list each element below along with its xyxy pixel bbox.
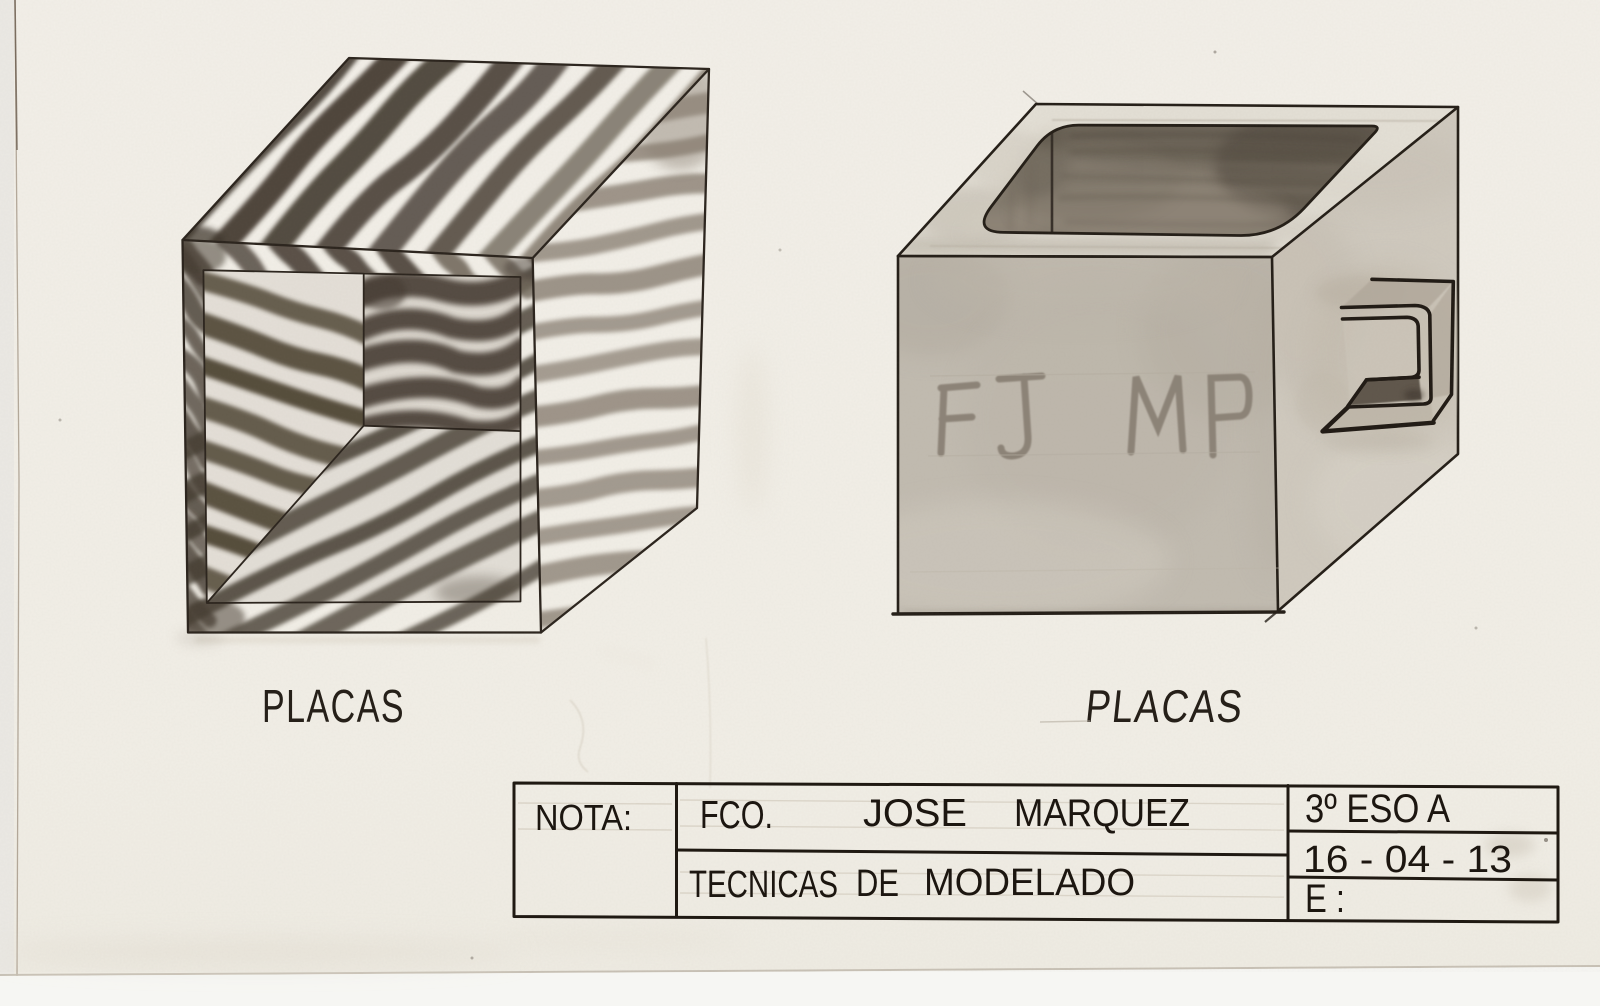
svg-text:NOTA:: NOTA: (535, 797, 632, 838)
svg-text:JOSE: JOSE (863, 792, 967, 835)
svg-text:3º ESO A: 3º ESO A (1305, 787, 1450, 831)
svg-text:MODELADO: MODELADO (924, 862, 1135, 904)
svg-text:TECNICAS: TECNICAS (689, 864, 838, 906)
svg-text:E :: E : (1305, 877, 1345, 921)
svg-text:PLACAS: PLACAS (262, 680, 405, 732)
svg-text:16 - 04 - 13: 16 - 04 - 13 (1303, 839, 1512, 881)
svg-text:FCO.: FCO. (700, 794, 773, 837)
svg-text:PLACAS: PLACAS (1083, 680, 1246, 732)
svg-text:MARQUEZ: MARQUEZ (1014, 792, 1190, 835)
svg-text:DE: DE (856, 863, 899, 905)
